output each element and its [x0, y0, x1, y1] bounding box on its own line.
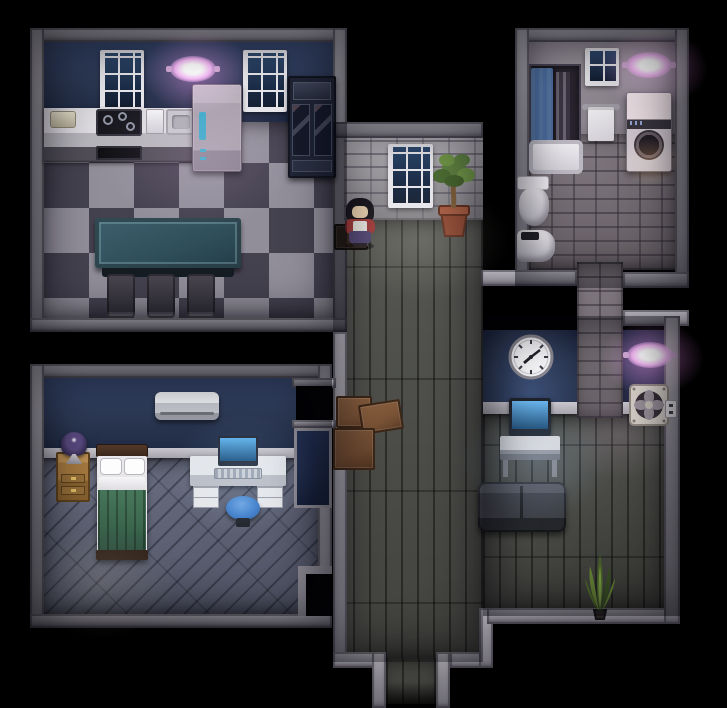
- refrigerator-handle: [199, 112, 206, 140]
- wall-segment: [675, 28, 689, 278]
- bathroom-ceiling-light: [626, 52, 672, 78]
- cabinet-drawer: [292, 160, 332, 172]
- utility-ceiling-light: [627, 342, 673, 368]
- study-table-leg: [552, 460, 557, 477]
- refrigerator-dots: [200, 146, 206, 160]
- wall-segment: [30, 614, 332, 628]
- stove-burner: [103, 115, 113, 125]
- exit-corridor-floor[interactable]: [386, 658, 436, 704]
- wall-segment: [30, 318, 347, 332]
- dining-table[interactable]: [95, 218, 241, 268]
- window-panes: [103, 53, 141, 109]
- wall-clock: Wall clock: [508, 334, 554, 380]
- game-viewport[interactable]: Potted tree: [0, 0, 727, 708]
- kitchen-window-right: [243, 50, 287, 112]
- basin-faucet: [521, 232, 539, 240]
- bed-footboard: [96, 550, 148, 560]
- bedroom-monitor-screen: [220, 438, 256, 461]
- bedroom-doorway[interactable]: [296, 386, 332, 422]
- ac-vent: [160, 412, 214, 415]
- shower-pipes: [556, 72, 570, 142]
- desk-stool[interactable]: [226, 496, 260, 520]
- wall-segment: [623, 272, 689, 288]
- chair[interactable]: [147, 274, 175, 318]
- desk-drawers: [257, 486, 283, 508]
- towel[interactable]: [588, 107, 614, 141]
- urinal-bowl: [519, 188, 549, 226]
- breadbox[interactable]: [50, 111, 76, 128]
- bench-divider: [520, 486, 523, 518]
- sink-basin: [172, 115, 190, 129]
- stove-burner: [118, 112, 127, 121]
- window-panes: [246, 53, 284, 109]
- wall-segment: [30, 364, 332, 378]
- bedside-lamp[interactable]: [61, 432, 87, 456]
- snake-plant[interactable]: Snake plant: [580, 544, 620, 620]
- outlet-slots: [669, 404, 673, 414]
- study-table[interactable]: [500, 436, 560, 460]
- bedroom-notch: [298, 566, 332, 616]
- wall-segment: [30, 28, 347, 42]
- bed-pillow: [124, 458, 145, 475]
- washer-controls: [630, 121, 644, 125]
- bed-pillow: [100, 458, 122, 475]
- stove-burner: [126, 122, 135, 131]
- stool-base: [236, 518, 250, 527]
- hallway-window: [388, 144, 433, 208]
- washer-door: [634, 130, 664, 160]
- character-face: [352, 206, 368, 218]
- lamp-sparkle: [71, 437, 77, 443]
- chair[interactable]: [107, 274, 135, 318]
- bathroom-window: [585, 48, 619, 86]
- chair[interactable]: [187, 274, 215, 318]
- window-panes: [588, 51, 616, 83]
- oven-door: [96, 146, 142, 160]
- cardboard-box[interactable]: [333, 428, 375, 470]
- wall-segment: [481, 270, 577, 286]
- wall-segment: [30, 28, 44, 332]
- bedroom-keyboard: [214, 468, 262, 479]
- study-table-leg: [503, 460, 508, 477]
- wall-segment: [436, 652, 450, 708]
- wall-segment: [515, 28, 689, 42]
- wall-alcove: [294, 428, 332, 508]
- character-feet: [353, 243, 367, 247]
- drawer-handle: [71, 489, 76, 492]
- doorway-sill: [292, 420, 336, 428]
- wall-segment: [333, 122, 483, 138]
- study-monitor-screen: [512, 401, 548, 429]
- cabinet-top-panel: [293, 82, 331, 100]
- kitchen-window-left: [100, 50, 144, 112]
- desk-drawers: [193, 486, 219, 508]
- wall-segment: [30, 364, 44, 628]
- dishwasher[interactable]: [146, 109, 164, 134]
- potted-tree[interactable]: Potted tree: [430, 148, 478, 238]
- ventilation-fan[interactable]: Ventilation fan: [629, 384, 669, 426]
- cabinet-glass-door: [292, 104, 310, 156]
- shower-tub: [529, 140, 583, 174]
- air-conditioner: [155, 392, 219, 420]
- window-panes: [391, 147, 430, 205]
- wall-segment: [372, 652, 386, 708]
- kitchen-ceiling-light: [170, 56, 216, 82]
- cabinet-glass-door: [314, 104, 332, 156]
- bed-blanket: [98, 490, 146, 552]
- drawer-handle: [71, 477, 76, 480]
- tiled-passage[interactable]: [577, 262, 623, 418]
- character[interactable]: [344, 198, 376, 250]
